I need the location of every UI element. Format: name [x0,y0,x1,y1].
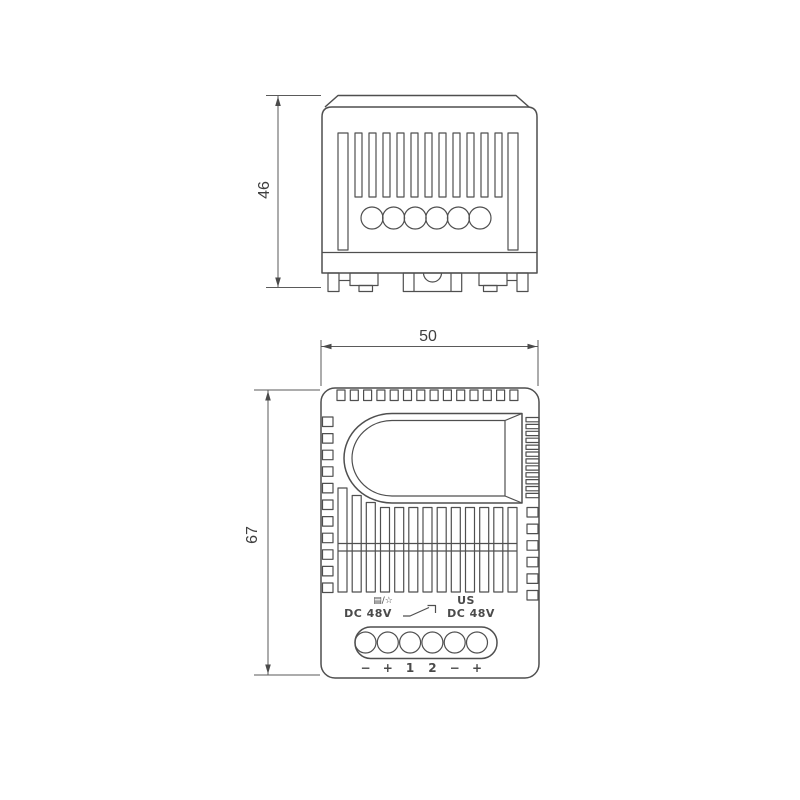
top-view-side-slots [338,133,518,250]
top-view-lid [325,96,529,108]
terminal-block [355,627,497,659]
arrow-up [275,97,281,107]
terminal-label-6: + [472,661,482,675]
terminal-label-4: 2 [428,661,436,675]
front-markings: ▤/☆ US DC 48V DC 48V [344,594,495,620]
hood-inner [352,421,505,497]
technical-drawing-page: 46 [0,0,800,800]
top-view-terminal-holes [361,207,491,229]
top-view-din-feet [328,273,528,292]
hood-outer [344,414,522,504]
top-view-body [322,107,537,273]
arrow-down [265,665,271,675]
front-right-ladder-vents [526,418,539,498]
front-top-vents [337,390,518,401]
arrow-left [322,344,332,350]
dimension-46: 46 [256,96,321,288]
front-view: ▤/☆ US DC 48V DC 48V − + 1 2 − + [321,388,539,678]
terminal-labels: − + 1 2 − + [360,661,482,675]
supply-label: US [457,594,475,607]
relay-dimension-drawing: 46 [0,0,800,800]
arrow-down [275,278,281,288]
dim-67-label: 67 [244,526,261,544]
top-view-vent-slots [355,133,502,197]
dimension-67: 67 [244,390,320,675]
sensor-hood [344,414,522,504]
front-right-vents [527,508,538,601]
voltage-right-label: DC 48V [447,607,495,620]
terminal-label-3: 1 [406,661,414,675]
relay-contact-symbol [403,606,436,617]
terminal-label-1: − [360,661,370,675]
front-left-vents [323,417,334,593]
dim-46-label: 46 [256,181,273,199]
din-clip-notch [424,273,442,282]
terminal-label-2: + [383,661,393,675]
arrow-right [528,344,538,350]
top-view [322,96,537,292]
dimension-50: 50 [321,328,538,386]
arrow-up [265,391,271,401]
dim-50-label: 50 [419,328,437,345]
function-symbol: ▤/☆ [373,596,393,606]
terminal-label-5: − [450,661,460,675]
voltage-left-label: DC 48V [344,607,392,620]
